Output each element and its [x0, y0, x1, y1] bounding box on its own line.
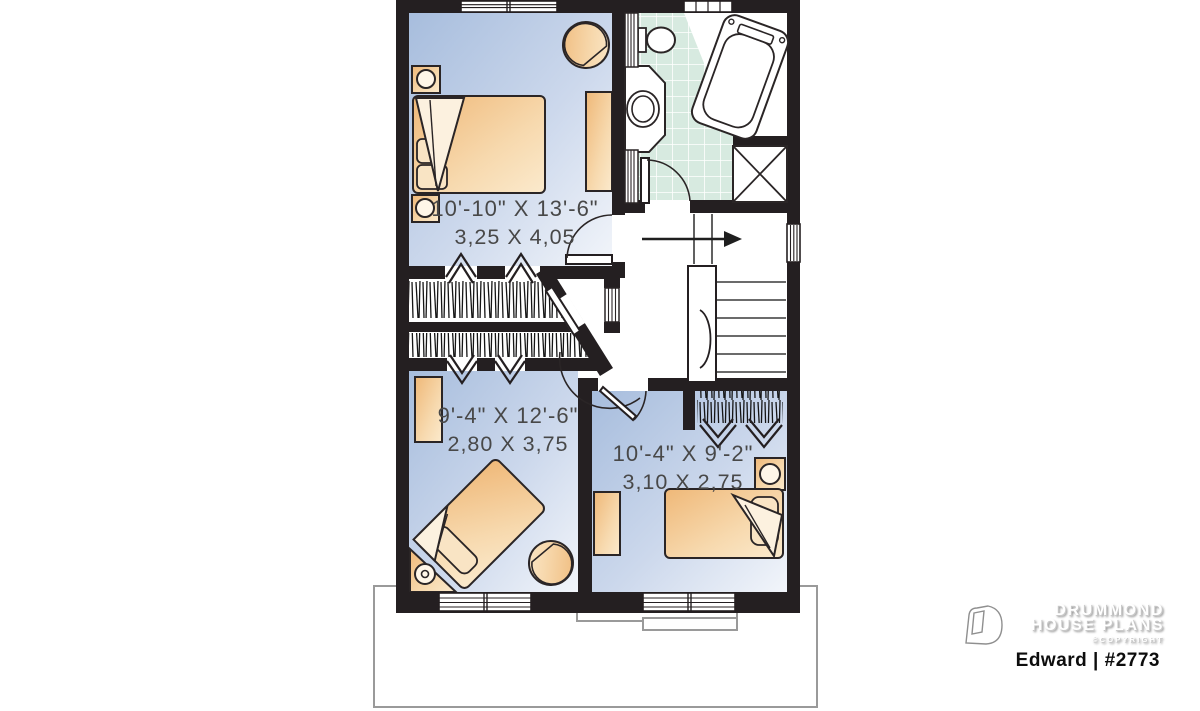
bedroom-1-dimensions: 10'-10" X 13'-6" 3,25 X 4,05 [420, 195, 610, 251]
branding-block: DRUMMOND HOUSE PLANS ©COPYRIGHT Edward |… [958, 603, 1164, 672]
shower-closet [733, 146, 787, 202]
drummond-d-icon [964, 603, 1004, 647]
bedroom-1-metric: 3,25 X 4,05 [420, 223, 610, 251]
bedroom-1-imperial: 10'-10" X 13'-6" [420, 195, 610, 223]
bedroom-2-metric: 2,80 X 3,75 [418, 430, 598, 458]
bedroom-3-imperial: 10'-4" X 9'-2" [598, 440, 768, 468]
brand-copyright: ©COPYRIGHT [1031, 635, 1164, 644]
plan-title: Edward | #2773 [958, 650, 1164, 672]
bedroom-3-dimensions: 10'-4" X 9'-2" 3,10 X 2,75 [598, 440, 768, 496]
vanity-sink [625, 66, 665, 152]
bedroom-2-imperial: 9'-4" X 12'-6" [418, 402, 598, 430]
bedroom-2-dimensions: 9'-4" X 12'-6" 2,80 X 3,75 [418, 402, 598, 458]
bedroom-3-metric: 3,10 X 2,75 [598, 468, 768, 496]
brand-name-line1: DRUMMOND [1031, 603, 1164, 618]
toilet [638, 28, 675, 53]
brand-name-line2: HOUSE PLANS [1031, 618, 1164, 633]
floor-plan-canvas: 10'-10" X 13'-6" 3,25 X 4,05 9'-4" X 12'… [0, 0, 1200, 711]
